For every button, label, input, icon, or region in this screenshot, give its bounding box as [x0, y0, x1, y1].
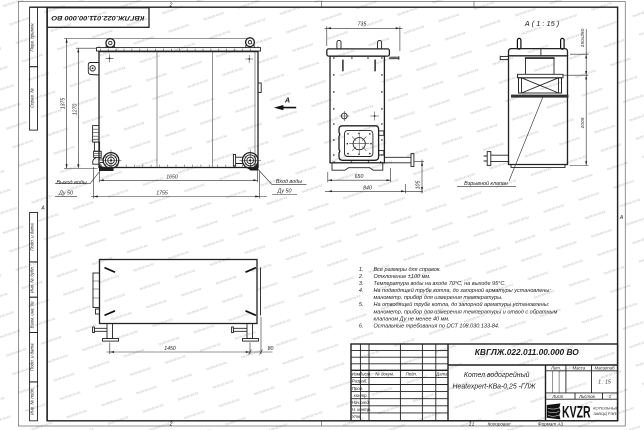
svg-text:контр.: контр. — [354, 393, 368, 398]
svg-text:№ докум.: № докум. — [375, 371, 394, 376]
svg-text:Подп. и дата: Подп. и дата — [30, 343, 35, 371]
svg-text:Разраб.: Разраб. — [352, 379, 368, 384]
svg-text:Нач.отд.: Нач.отд. — [352, 400, 370, 405]
svg-text:Взам. инв. №: Взам. инв. № — [30, 301, 35, 328]
svg-text:Лит.: Лит. — [550, 366, 561, 371]
svg-text:2: 2 — [169, 422, 173, 428]
svg-text:1270: 1270 — [72, 104, 78, 116]
svg-text:2: 2 — [169, 2, 173, 8]
svg-text:На подводящей трубе котла, до: На подводящей трубе котла, до запорной а… — [374, 287, 552, 294]
svg-text:Heatexpert-КВа-0,25 -ГЛЖ: Heatexpert-КВа-0,25 -ГЛЖ — [453, 383, 537, 390]
svg-text:Утв.: Утв. — [352, 414, 362, 419]
svg-text:1375: 1375 — [61, 98, 67, 110]
svg-text:Взрывной клапан: Взрывной клапан — [464, 180, 508, 187]
svg-text:80: 80 — [268, 346, 274, 352]
svg-text:Копировал: Копировал — [488, 421, 511, 426]
svg-text:А: А — [619, 215, 624, 221]
svg-text:манометр, прибор для измерения: манометр, прибор для измерения температу… — [374, 295, 503, 301]
svg-text:А ( 1 : 15 ): А ( 1 : 15 ) — [524, 19, 560, 28]
svg-text:Температура воды на входе 70°С: Температура воды на входе 70°С, на выход… — [374, 281, 506, 287]
svg-text:650: 650 — [355, 174, 364, 180]
svg-text:150х250: 150х250 — [580, 28, 586, 47]
svg-text:Выход воды: Выход воды — [56, 180, 86, 186]
svg-text:1650: 1650 — [166, 174, 178, 180]
svg-text:На отводящей трубе котла, до з: На отводящей трубе котла, до запорной ар… — [374, 301, 550, 308]
svg-text:1755: 1755 — [156, 191, 168, 197]
svg-text:Подп.: Подп. — [406, 371, 417, 376]
svg-text:КВГЛЖ.022.011.00.000 ВО: КВГЛЖ.022.011.00.000 ВО — [51, 14, 144, 21]
svg-text:Все размеры для справок.: Все размеры для справок. — [374, 267, 441, 273]
svg-text:Инв. № подл.: Инв. № подл. — [30, 388, 35, 415]
svg-text:3.: 3. — [359, 281, 364, 287]
svg-text:манометр, прибор для измерения: манометр, прибор для измерения температу… — [374, 309, 558, 315]
svg-text:1.: 1. — [359, 267, 364, 273]
svg-text:Котел водогрейный: Котел водогрейный — [464, 371, 530, 379]
svg-text:Н. контр.: Н. контр. — [352, 407, 371, 412]
svg-text:840: 840 — [363, 185, 372, 191]
svg-text:Листов: Листов — [578, 394, 595, 399]
svg-text:ЗАВОД РЭП: ЗАВОД РЭП — [593, 411, 616, 416]
svg-text:Отклонение ±100 мм.: Отклонение ±100 мм. — [374, 274, 431, 280]
svg-text:Ду 50: Ду 50 — [276, 189, 291, 195]
svg-text:А: А — [284, 96, 290, 105]
svg-text:Пров.: Пров. — [352, 386, 363, 391]
svg-text:А: А — [40, 206, 45, 212]
svg-text:Остальные требования по ОСТ 10: Остальные требования по ОСТ 108.030.133-… — [374, 324, 500, 330]
svg-text:105: 105 — [416, 181, 422, 190]
svg-text:6.: 6. — [359, 324, 364, 330]
svg-text:1450: 1450 — [164, 346, 176, 352]
svg-text:Лист: Лист — [551, 394, 563, 399]
svg-text:Подп. и дата: Подп. и дата — [30, 223, 35, 251]
svg-text:Масштаб: Масштаб — [594, 366, 615, 371]
svg-text:клапаном Ду не менее 40 мм.: клапаном Ду не менее 40 мм. — [374, 316, 450, 322]
svg-text:KVZR: KVZR — [562, 402, 591, 421]
svg-text:Справ. №: Справ. № — [30, 88, 35, 108]
svg-text:Вход воды: Вход воды — [276, 179, 302, 185]
svg-text:Масса: Масса — [573, 366, 586, 371]
svg-text:Формат А3: Формат А3 — [538, 421, 564, 426]
svg-text:Перв. примен.: Перв. примен. — [30, 22, 35, 51]
svg-text:4.: 4. — [359, 288, 364, 294]
svg-text:Ду 50: Ду 50 — [58, 190, 73, 196]
svg-text:735: 735 — [358, 21, 367, 27]
svg-text:Дата: Дата — [435, 371, 448, 376]
svg-text:КОТЕЛЬНЫЙ: КОТЕЛЬНЫЙ — [593, 406, 618, 411]
svg-text:КВГЛЖ.022.011.00.000 ВО: КВГЛЖ.022.011.00.000 ВО — [475, 347, 579, 357]
svg-text:1 : 15: 1 : 15 — [598, 379, 611, 385]
svg-text:1: 1 — [472, 421, 475, 426]
svg-text:5.: 5. — [359, 302, 364, 308]
svg-text:Лист: Лист — [358, 371, 370, 376]
svg-text:2.: 2. — [358, 274, 364, 280]
svg-text:Инв. № дубл.: Инв. № дубл. — [30, 266, 35, 293]
svg-text:1005: 1005 — [580, 117, 586, 128]
